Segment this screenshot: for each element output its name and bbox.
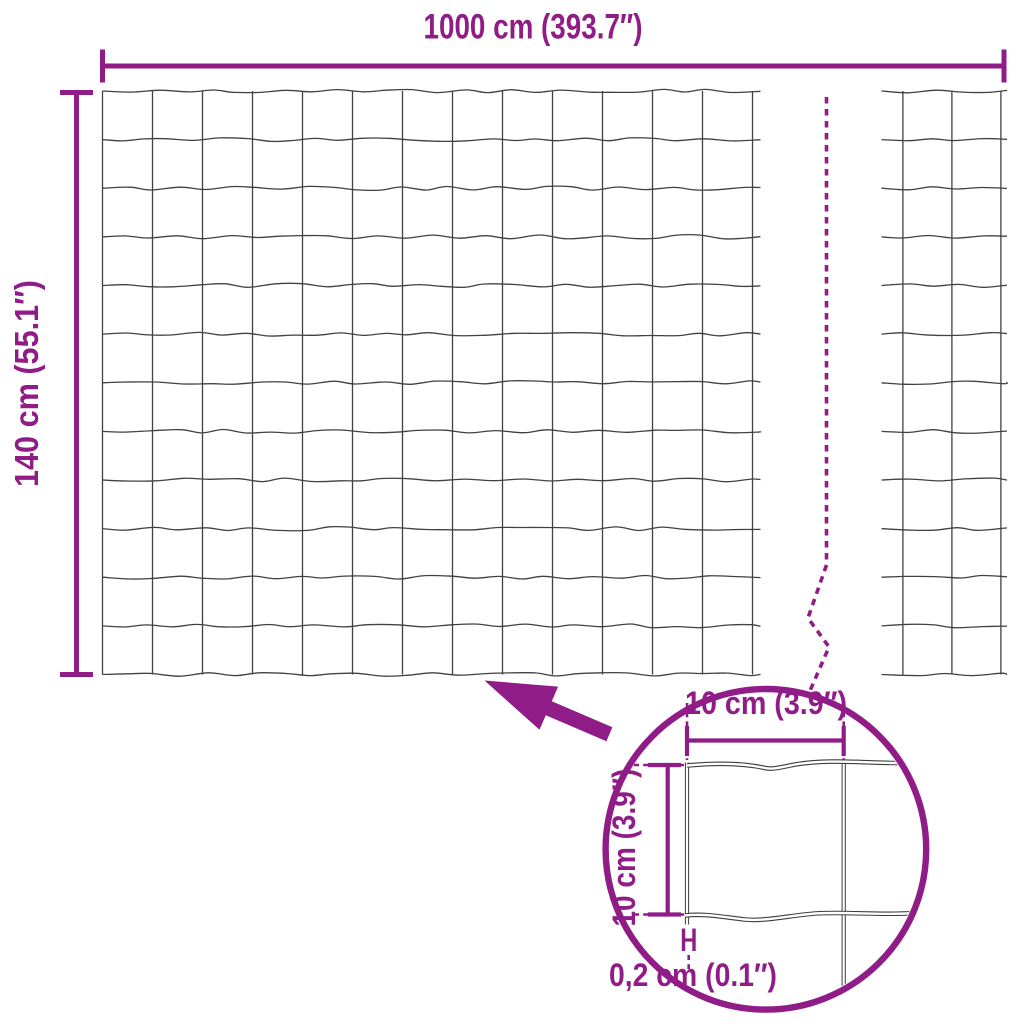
- svg-text:10 cm (3.9″): 10 cm (3.9″): [685, 685, 847, 721]
- svg-text:140 cm (55.1″): 140 cm (55.1″): [8, 280, 45, 487]
- svg-text:10 cm (3.9″): 10 cm (3.9″): [606, 769, 642, 927]
- svg-text:1000 cm (393.7″): 1000 cm (393.7″): [424, 8, 643, 47]
- svg-text:0,2 cm (0.1″): 0,2 cm (0.1″): [609, 957, 777, 993]
